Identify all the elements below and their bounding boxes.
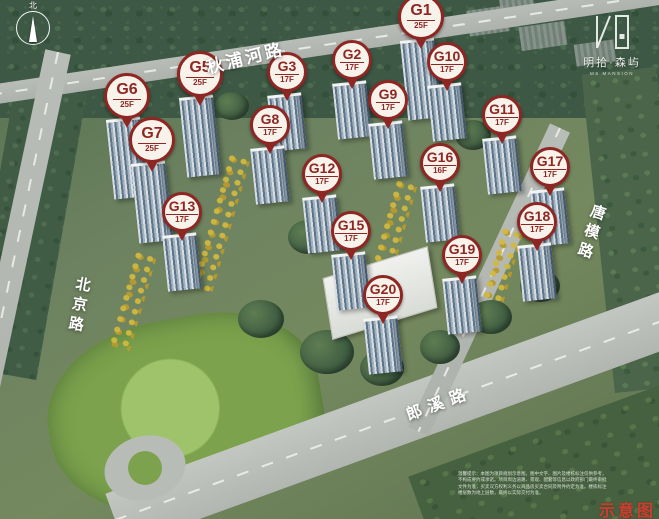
pin-badge: G725F <box>129 117 175 163</box>
pin-floor-count: 17F <box>530 225 544 235</box>
pin-building-id: G16 <box>424 150 456 166</box>
pin-floor-count: 17F <box>344 234 358 244</box>
building-pin-g9[interactable]: G917F <box>368 80 408 135</box>
pin-floor-count: 25F <box>193 78 207 88</box>
pin-badge: G1117F <box>482 95 522 135</box>
pin-tail-icon <box>434 181 446 198</box>
pin-building-id: G8 <box>258 112 283 128</box>
building-pin-g2[interactable]: G217F <box>332 40 372 95</box>
logo-name-en: MS MANSION <box>573 71 651 76</box>
building-pin-g17[interactable]: G1717F <box>530 147 570 202</box>
building-pin-g13[interactable]: G1317F <box>162 192 202 247</box>
building-pin-g10[interactable]: G1017F <box>427 42 467 97</box>
pin-tail-icon <box>415 38 427 55</box>
pin-tail-icon <box>194 95 206 112</box>
pin-tail-icon <box>176 230 188 247</box>
pin-tail-icon <box>377 313 389 330</box>
pin-badge: G1217F <box>302 154 342 194</box>
pin-building-id: G12 <box>306 161 338 177</box>
pin-badge: G1616F <box>420 143 460 183</box>
pin-building-id: G13 <box>166 199 198 215</box>
pin-building-id: G17 <box>534 154 566 170</box>
pin-floor-count: 17F <box>543 170 557 180</box>
pin-building-id: G11 <box>486 102 518 118</box>
compass-icon <box>16 11 50 45</box>
pin-building-id: G2 <box>340 47 365 63</box>
building-pin-g20[interactable]: G2017F <box>363 275 403 330</box>
disclaimer-text: 温馨提示：本图为项目规划示意图，图中文字、图片及楼栋标注仅供参考，不构成要约或承… <box>458 471 610 496</box>
pin-building-id: G3 <box>275 59 300 75</box>
pin-building-id: G10 <box>431 49 463 65</box>
compass-arrow-icon <box>29 16 37 42</box>
pin-tail-icon <box>264 143 276 160</box>
pin-floor-count: 17F <box>455 258 469 268</box>
logo-name-cn: 明拾·森屿 <box>573 54 651 70</box>
building-pin-g8[interactable]: G817F <box>250 105 290 160</box>
pin-building-id: G1 <box>407 3 434 21</box>
pin-floor-count: 17F <box>440 65 454 75</box>
pin-floor-count: 17F <box>381 103 395 113</box>
building-pin-g12[interactable]: G1217F <box>302 154 342 209</box>
pin-badge: G1017F <box>427 42 467 82</box>
pin-badge: G2017F <box>363 275 403 315</box>
pin-building-id: G20 <box>367 282 399 298</box>
compass-north-label: 北 <box>29 2 37 10</box>
pin-badge: G217F <box>332 40 372 80</box>
pin-badge: G917F <box>368 80 408 120</box>
building-pin-g15[interactable]: G1517F <box>331 211 371 266</box>
developer-logo: 明拾·森屿 MS MANSION <box>573 12 651 76</box>
pin-building-id: G18 <box>521 209 553 225</box>
pin-tail-icon <box>345 249 357 266</box>
pin-building-id: G15 <box>335 218 367 234</box>
pin-tail-icon <box>441 80 453 97</box>
schematic-stamp: 示意图 <box>599 497 656 519</box>
pin-tail-icon <box>346 78 358 95</box>
pin-building-id: G6 <box>113 82 140 100</box>
pin-building-id: G7 <box>138 126 165 144</box>
pin-floor-count: 25F <box>414 21 428 31</box>
pin-tail-icon <box>496 133 508 150</box>
pin-badge: G625F <box>104 73 150 119</box>
pin-tail-icon <box>382 118 394 135</box>
pin-tail-icon <box>544 185 556 202</box>
pin-floor-count: 17F <box>376 298 390 308</box>
pin-floor-count: 25F <box>145 144 159 154</box>
pin-tail-icon <box>146 161 158 178</box>
pin-badge: G817F <box>250 105 290 145</box>
pin-building-id: G19 <box>446 242 478 258</box>
pin-tail-icon <box>531 240 543 257</box>
pin-floor-count: 17F <box>263 128 277 138</box>
building-pin-g16[interactable]: G1616F <box>420 143 460 198</box>
pin-badge: G1517F <box>331 211 371 251</box>
logo-mark-icon <box>591 12 633 52</box>
pin-floor-count: 16F <box>433 166 447 176</box>
building-pin-g7[interactable]: G725F <box>129 117 175 178</box>
building-pin-g18[interactable]: G1817F <box>517 202 557 257</box>
pin-building-id: G9 <box>376 87 401 103</box>
pin-badge: G1817F <box>517 202 557 242</box>
masterplan-scene: G125FG217FG317FG525FG625FG725FG817FG917F… <box>0 0 659 519</box>
pin-tail-icon <box>456 273 468 290</box>
building-pin-g11[interactable]: G1117F <box>482 95 522 150</box>
pin-floor-count: 17F <box>280 75 294 85</box>
pin-floor-count: 17F <box>345 63 359 73</box>
pin-floor-count: 25F <box>120 100 134 110</box>
pin-floor-count: 17F <box>315 177 329 187</box>
pin-floor-count: 17F <box>175 215 189 225</box>
pin-tail-icon <box>316 192 328 209</box>
pin-badge: G1717F <box>530 147 570 187</box>
pin-badge: G1317F <box>162 192 202 232</box>
pin-floor-count: 17F <box>495 118 509 128</box>
pin-badge: G125F <box>398 0 444 40</box>
buildings-layer: G125FG217FG317FG525FG625FG725FG817FG917F… <box>0 0 659 519</box>
building-pin-g19[interactable]: G1917F <box>442 235 482 290</box>
pin-badge: G1917F <box>442 235 482 275</box>
compass: 北 <box>10 2 56 54</box>
